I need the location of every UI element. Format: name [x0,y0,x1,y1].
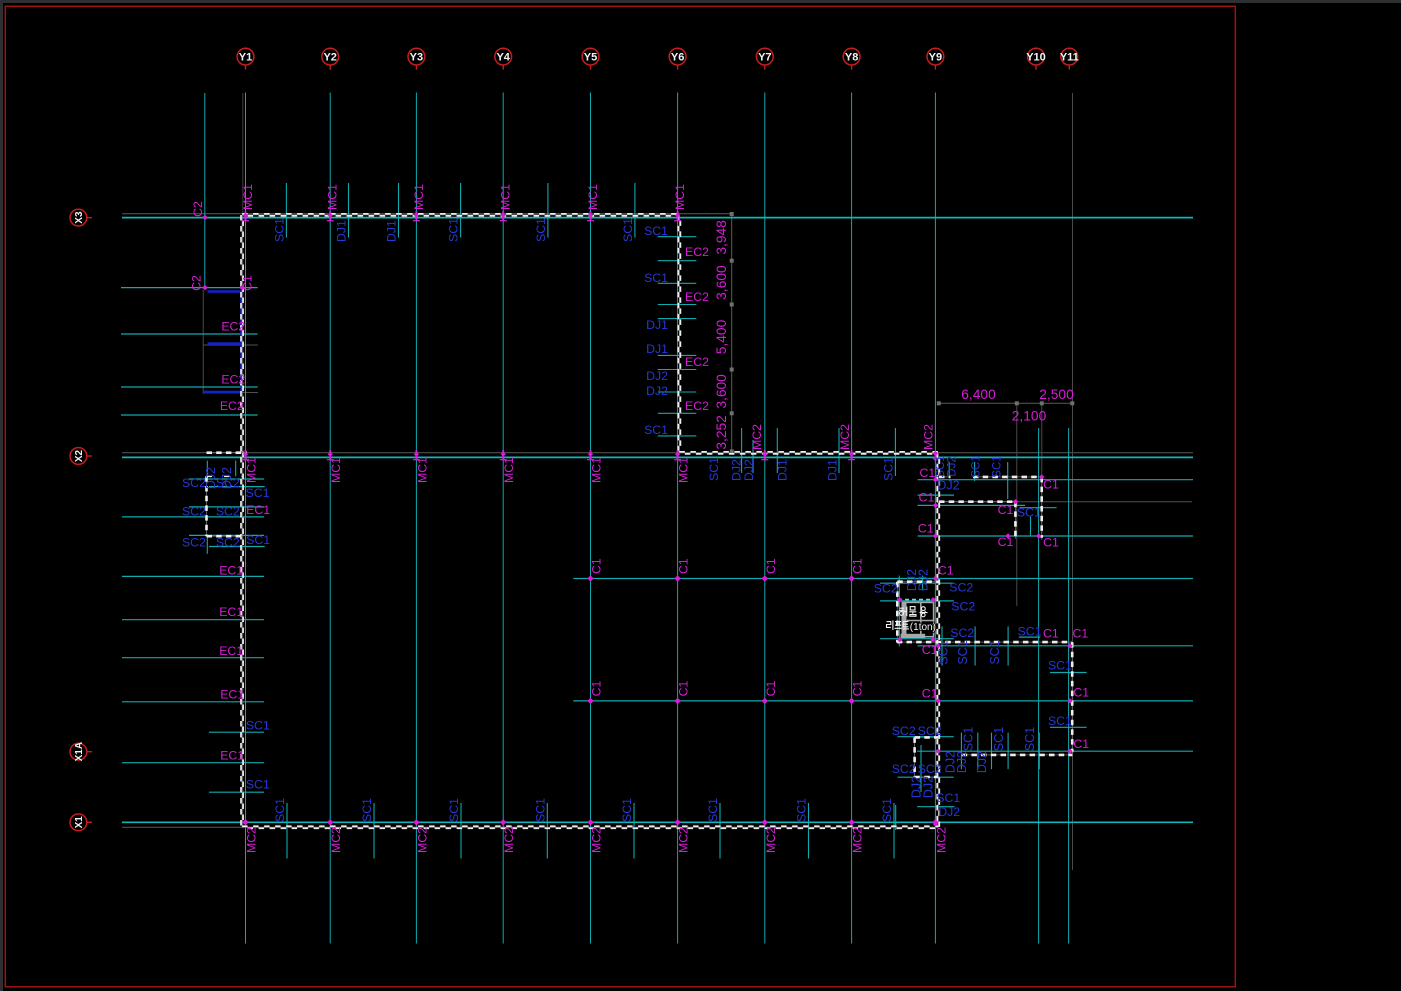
svg-text:C1: C1 [677,681,691,697]
svg-text:(1ton): (1ton) [910,622,936,633]
svg-text:EC1: EC1 [220,749,244,763]
svg-text:DJ1: DJ1 [335,220,349,242]
svg-text:MC2: MC2 [851,827,865,853]
svg-text:EC2: EC2 [221,372,245,386]
svg-text:MC1: MC1 [245,457,259,483]
svg-text:C1: C1 [938,564,954,578]
svg-text:SC2: SC2 [182,535,206,549]
svg-text:Y7: Y7 [758,52,771,64]
svg-text:SC2: SC2 [216,504,240,518]
svg-text:SC1: SC1 [992,727,1006,751]
svg-text:MC1: MC1 [673,184,687,210]
svg-text:5,400: 5,400 [714,319,729,354]
svg-text:DJ1: DJ1 [776,459,790,481]
svg-text:EC1: EC1 [220,687,244,701]
svg-text:SC1: SC1 [1048,714,1072,728]
svg-text:C1: C1 [919,491,935,505]
svg-text:SC2: SC2 [182,476,206,490]
svg-text:C1: C1 [851,681,865,697]
svg-text:SC1: SC1 [620,798,634,822]
svg-text:3,600: 3,600 [714,374,729,409]
svg-text:C1: C1 [241,275,255,291]
svg-text:C2: C2 [190,275,204,291]
svg-text:SC1: SC1 [988,640,1002,664]
svg-text:SC1: SC1 [1018,625,1042,639]
svg-text:C1: C1 [764,558,778,574]
svg-text:Y4: Y4 [496,52,510,64]
svg-text:Y9: Y9 [929,52,942,64]
svg-text:SC2: SC2 [216,535,240,549]
svg-text:DJ2: DJ2 [742,459,756,481]
svg-text:MC1: MC1 [502,457,516,483]
svg-text:SC1: SC1 [1017,506,1041,520]
svg-text:SC1: SC1 [644,271,668,285]
svg-text:EC2: EC2 [685,245,709,259]
svg-text:Y3: Y3 [410,52,423,64]
svg-text:DJ1: DJ1 [646,342,668,356]
svg-text:C1: C1 [998,503,1014,517]
svg-text:C1: C1 [1043,477,1059,491]
svg-text:DJ2: DJ2 [937,479,959,493]
svg-text:6,400: 6,400 [961,387,996,402]
svg-text:SC1: SC1 [935,455,947,477]
svg-text:C1: C1 [590,681,604,697]
svg-text:DJ2: DJ2 [938,805,960,819]
svg-text:SC2: SC2 [918,762,942,776]
svg-text:SC1: SC1 [880,798,894,822]
svg-text:EC2: EC2 [685,355,709,369]
svg-text:EC2: EC2 [685,290,709,304]
svg-text:SC1: SC1 [273,798,287,822]
svg-text:SC2: SC2 [951,599,975,613]
svg-text:MC1: MC1 [590,457,604,483]
svg-text:DJ1: DJ1 [826,459,840,481]
svg-text:X1A: X1A [74,742,85,761]
svg-text:SC2: SC2 [182,504,206,518]
svg-text:C2: C2 [191,201,205,217]
svg-text:Y2: Y2 [323,52,336,64]
svg-text:MC2: MC2 [934,827,948,853]
svg-text:SC2: SC2 [874,581,898,595]
svg-text:SC1: SC1 [644,224,668,238]
svg-text:EC2: EC2 [220,399,244,413]
svg-text:DJ2: DJ2 [975,751,989,773]
svg-text:SC1: SC1 [992,455,1004,477]
svg-text:SC1: SC1 [447,218,461,242]
svg-text:C1: C1 [918,522,934,536]
svg-text:SC1: SC1 [936,791,960,805]
svg-text:SC2: SC2 [892,762,916,776]
svg-text:SC2: SC2 [950,626,974,640]
svg-text:C1: C1 [920,466,936,480]
svg-text:SC1: SC1 [360,798,374,822]
svg-text:C1: C1 [1073,627,1089,641]
svg-text:Y11: Y11 [1060,52,1079,64]
svg-text:SC1: SC1 [246,719,270,733]
svg-text:SC1: SC1 [621,218,635,242]
svg-text:MC2: MC2 [329,827,343,853]
svg-text:Y1: Y1 [239,52,252,64]
svg-text:MC1: MC1 [499,184,513,210]
svg-text:C1: C1 [1073,737,1089,751]
svg-text:MC1: MC1 [677,457,691,483]
svg-text:SC1: SC1 [707,457,721,481]
svg-text:EC1: EC1 [246,503,270,517]
svg-text:DJ2: DJ2 [646,369,668,383]
svg-text:DJ2: DJ2 [955,751,969,773]
svg-text:SC1: SC1 [956,640,970,664]
svg-text:EC2: EC2 [221,319,245,333]
svg-text:DJ2: DJ2 [916,569,930,591]
svg-text:C1: C1 [764,681,778,697]
svg-text:Y8: Y8 [845,52,858,64]
svg-text:SC1: SC1 [882,457,896,481]
svg-text:SC1: SC1 [447,798,461,822]
svg-text:X2: X2 [74,449,85,462]
svg-text:C1: C1 [590,558,604,574]
svg-text:SC1: SC1 [1023,727,1037,751]
svg-text:SC1: SC1 [795,798,809,822]
svg-text:DJ2: DJ2 [220,467,234,489]
svg-text:EC1: EC1 [219,605,243,619]
svg-text:MC1: MC1 [586,184,600,210]
svg-text:MC2: MC2 [764,827,778,853]
svg-text:SC1: SC1 [272,218,286,242]
svg-text:3,600: 3,600 [714,265,729,300]
svg-text:MC2: MC2 [415,827,429,853]
svg-text:Y10: Y10 [1026,52,1046,64]
svg-text:SC1: SC1 [246,486,270,500]
svg-text:EC1: EC1 [219,644,243,658]
svg-text:SC1: SC1 [533,798,547,822]
svg-text:X1: X1 [74,816,85,829]
svg-text:C1: C1 [1043,536,1059,550]
svg-text:Y6: Y6 [671,52,684,64]
svg-text:SC1: SC1 [961,727,975,751]
svg-text:C1: C1 [1073,686,1089,700]
svg-text:C1: C1 [922,686,938,700]
svg-text:X3: X3 [74,211,85,224]
svg-text:DJ2: DJ2 [947,456,959,476]
svg-text:2,100: 2,100 [1012,409,1047,424]
svg-text:SC2: SC2 [949,581,973,595]
svg-text:MC2: MC2 [677,827,691,853]
svg-text:Y5: Y5 [584,52,597,64]
svg-text:SC1: SC1 [1048,659,1072,673]
svg-text:DJ2: DJ2 [646,384,668,398]
svg-text:C1: C1 [677,558,691,574]
svg-text:MC1: MC1 [412,184,426,210]
svg-text:3,252: 3,252 [714,415,729,450]
svg-text:SC2: SC2 [892,724,916,738]
svg-text:SC1: SC1 [971,455,983,477]
svg-text:SC2: SC2 [918,724,942,738]
svg-text:C1: C1 [922,643,938,657]
svg-text:SC1: SC1 [706,798,720,822]
svg-text:SC1: SC1 [644,423,668,437]
svg-text:MC1: MC1 [329,457,343,483]
svg-text:EC1: EC1 [219,563,243,577]
svg-text:MC2: MC2 [245,827,259,853]
svg-text:DJ1: DJ1 [646,318,668,332]
svg-text:DJ2: DJ2 [204,467,218,489]
svg-text:MC1: MC1 [241,184,255,210]
svg-text:MC2: MC2 [590,827,604,853]
svg-text:SC1: SC1 [534,218,548,242]
svg-text:MC2: MC2 [838,424,852,450]
svg-text:SC1: SC1 [246,777,270,791]
svg-text:C1: C1 [998,535,1014,549]
svg-text:SC1: SC1 [936,640,950,664]
svg-text:3,948: 3,948 [714,220,729,255]
svg-text:2,500: 2,500 [1039,387,1074,402]
svg-text:DJ2: DJ2 [922,776,936,798]
svg-text:C1: C1 [1043,627,1059,641]
svg-text:MC1: MC1 [415,457,429,483]
svg-text:C1: C1 [851,558,865,574]
svg-text:MC1: MC1 [326,184,340,210]
svg-text:MC2: MC2 [922,424,936,450]
svg-text:DJ1: DJ1 [385,220,399,242]
svg-text:EC2: EC2 [685,399,709,413]
svg-text:MC2: MC2 [502,827,516,853]
svg-text:MC2: MC2 [750,424,764,450]
svg-text:SC1: SC1 [246,533,270,547]
